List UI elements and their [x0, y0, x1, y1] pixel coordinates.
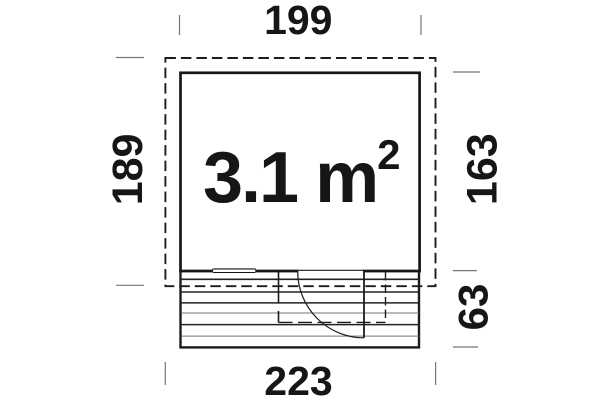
svg-text:163: 163 — [459, 133, 507, 205]
svg-text:199: 199 — [264, 0, 332, 43]
svg-text:63: 63 — [450, 284, 497, 331]
svg-text:223: 223 — [264, 358, 332, 400]
svg-text:3.1 m2: 3.1 m2 — [203, 131, 400, 218]
svg-text:189: 189 — [104, 134, 152, 206]
